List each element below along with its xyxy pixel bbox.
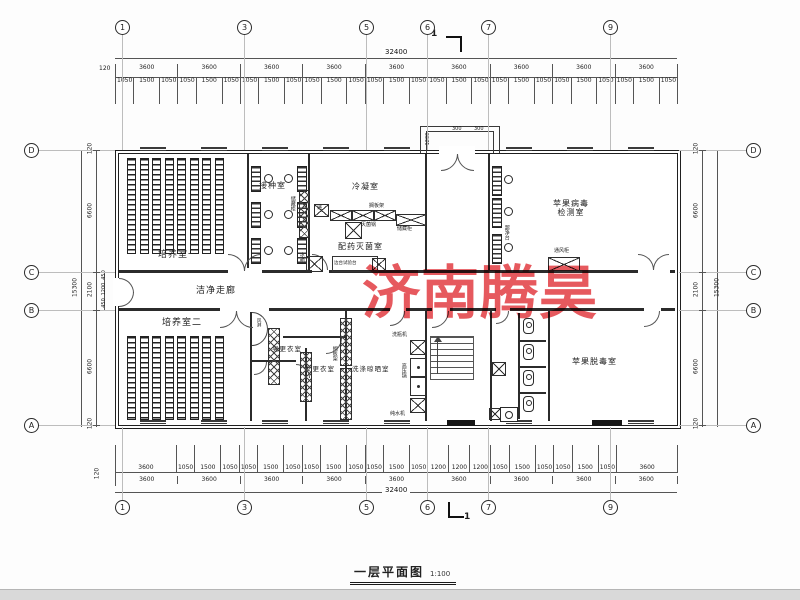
grid-bubble-bottom: 7 xyxy=(481,500,496,515)
culture-rack xyxy=(202,158,211,254)
door-threshold xyxy=(447,420,475,426)
grid-bubble-right: B xyxy=(746,303,761,318)
dim-segment: 1050 xyxy=(240,445,258,472)
grid-bubble-bottom: 1 xyxy=(115,500,130,515)
dim-segment: 1500 xyxy=(384,445,410,472)
grid-axis-line xyxy=(38,425,115,426)
stool xyxy=(284,210,293,219)
window-symbol xyxy=(140,147,166,149)
room-label-detox: 苹果脱毒室 xyxy=(572,357,617,366)
grid-bubble-bottom: 5 xyxy=(359,500,374,515)
culture-rack xyxy=(152,158,161,254)
dim-segment: 3600 xyxy=(366,64,428,77)
locker-rack xyxy=(268,328,280,385)
dim-segment: 1050 xyxy=(285,77,303,104)
grid-bubble-right: D xyxy=(746,143,761,158)
room-label-corridor: 洁净走廊 xyxy=(196,286,236,296)
dim-right-120b: 120 xyxy=(693,409,700,439)
window-symbol xyxy=(201,420,227,422)
dim-segment: 1050 xyxy=(223,77,241,104)
culture-rack xyxy=(152,336,161,420)
clean-bench xyxy=(492,198,502,228)
dim-segment: 1050 xyxy=(553,77,571,104)
dim-segment: 3600 xyxy=(428,64,490,77)
drawing-scale: 1:100 xyxy=(430,570,450,578)
culture-rack xyxy=(165,336,174,420)
dim-right-120a: 120 xyxy=(693,134,700,164)
grid-bubble-top: 1 xyxy=(115,20,130,35)
stool xyxy=(264,174,273,183)
dim-segment: 3600 xyxy=(303,476,365,484)
grid-axis-line xyxy=(38,272,115,273)
equip-label-clean-bench: 超净台 xyxy=(503,225,509,240)
dim-segment: 1050 xyxy=(303,77,321,104)
footer-strip xyxy=(0,589,800,600)
dim-segment: 1050 xyxy=(410,77,428,104)
dim-line-left xyxy=(96,150,97,427)
dim-top-lead: 120 xyxy=(99,66,110,73)
dim-segment: 3600 xyxy=(116,445,177,472)
window-symbol xyxy=(262,147,288,149)
entrance-dim-300b: 300 xyxy=(474,127,484,133)
dim-segment: 3600 xyxy=(116,476,178,484)
stool xyxy=(504,207,513,216)
dim-segment: 1050 xyxy=(366,77,384,104)
dim-row-bottom-bays: 360036003600360036003600360036003600 xyxy=(115,472,678,486)
equip-label-bottle-washer: 洗瓶机 xyxy=(392,333,407,339)
dim-bottom-lead: 120 xyxy=(94,464,101,484)
grid-axis-line xyxy=(427,427,428,500)
culture-rack xyxy=(215,158,224,254)
dim-right-overall: 15300 xyxy=(714,273,721,303)
stool xyxy=(264,246,273,255)
stool xyxy=(284,246,293,255)
section-mark-bottom-label: 1 xyxy=(464,512,471,522)
room-label-condensing: 冷凝室 xyxy=(352,182,379,191)
dim-bottom-overall: 32400 xyxy=(382,486,410,494)
culture-rack xyxy=(202,336,211,420)
grid-bubble-right: A xyxy=(746,418,761,433)
equipment-box xyxy=(314,204,329,217)
culture-rack xyxy=(190,336,199,420)
interior-wall xyxy=(247,154,249,272)
equipment-box xyxy=(396,214,426,226)
equip-label-storage: 储藏柜 xyxy=(397,227,412,233)
grid-axis-line xyxy=(679,310,746,311)
door-opening xyxy=(439,146,475,154)
equip-label-shelf-row: 搁板架 xyxy=(369,204,384,210)
dim-segment: 1050 xyxy=(347,77,365,104)
dim-segment: 1500 xyxy=(510,445,536,472)
dim-segment: 1050 xyxy=(491,77,509,104)
grid-axis-line xyxy=(427,34,428,150)
culture-rack xyxy=(127,158,136,254)
grid-bubble-top: 9 xyxy=(603,20,618,35)
room-label-inoculation: 接种室 xyxy=(259,181,286,190)
window-symbol xyxy=(567,147,593,149)
toilet-pan xyxy=(523,344,534,360)
grid-axis-line xyxy=(610,34,611,150)
dim-segment: 1050 xyxy=(536,445,554,472)
dim-left-120b: 120 xyxy=(87,409,94,439)
grid-bubble-left: B xyxy=(24,303,39,318)
dim-segment: 3600 xyxy=(553,64,615,77)
dim-segment: 1050 xyxy=(160,77,178,104)
dim-tick xyxy=(699,425,706,426)
equip-label-sterilizer: 灭菌锅 xyxy=(361,223,376,229)
window-symbol xyxy=(323,147,349,149)
dim-segment: 3600 xyxy=(116,64,178,77)
culture-rack xyxy=(127,336,136,420)
dim-tick xyxy=(93,310,100,311)
grid-axis-line xyxy=(366,427,367,500)
equipment-box xyxy=(306,256,323,272)
window-symbol xyxy=(262,420,288,422)
dim-right-2100: 2100 xyxy=(693,275,700,305)
culture-rack xyxy=(215,336,224,420)
dim-left-6600a: 6600 xyxy=(87,196,94,226)
grid-axis-line xyxy=(488,34,489,150)
dim-segment: 1500 xyxy=(259,77,285,104)
dim-top-overall: 32400 xyxy=(382,48,410,56)
window-symbol xyxy=(384,420,410,422)
toilet-pan xyxy=(523,396,534,412)
room-label-washing: 洗涤晾晒室 xyxy=(352,366,390,373)
dim-segment: 1500 xyxy=(384,77,410,104)
culture-rack xyxy=(165,158,174,254)
dim-segment: 3600 xyxy=(178,476,240,484)
work-bench xyxy=(251,166,261,192)
locker-rack xyxy=(300,352,312,402)
dim-segment: 1500 xyxy=(322,77,348,104)
work-bench xyxy=(251,238,261,264)
equip-label-water-purifier: 纯水机 xyxy=(390,412,405,418)
dim-segment: 1050 xyxy=(221,445,239,472)
culture-rack xyxy=(140,158,149,254)
interior-wall xyxy=(518,340,546,342)
work-bench xyxy=(297,166,307,192)
dim-segment: 1050 xyxy=(303,445,321,472)
dim-tick xyxy=(93,150,100,151)
dim-segment: 3600 xyxy=(491,64,553,77)
window-symbol xyxy=(323,420,349,422)
equip-label-storage2: 储藏柜 xyxy=(289,196,295,211)
dim-tick xyxy=(699,272,706,273)
grid-bubble-left: C xyxy=(24,265,39,280)
door-opening xyxy=(253,306,269,312)
locker-rack xyxy=(299,190,310,238)
window-symbol xyxy=(628,420,654,422)
dim-segment: 1200 xyxy=(428,445,449,472)
dim-segment: 3600 xyxy=(616,476,678,484)
section-mark-bottom-icon xyxy=(448,502,464,518)
interior-wall xyxy=(518,366,546,368)
dim-segment: 3600 xyxy=(303,64,365,77)
dim-segment: 1050 xyxy=(535,77,553,104)
dim-segment: 1050 xyxy=(177,445,195,472)
dim-segment: 1050 xyxy=(597,77,615,104)
dim-segment: 3600 xyxy=(617,445,678,472)
dim-segment: 1500 xyxy=(321,445,347,472)
grid-axis-line xyxy=(679,425,746,426)
dim-row-top-windows: 1050150010501050150010501050150010501050… xyxy=(115,77,678,104)
window-symbol xyxy=(201,147,227,149)
equipment-box xyxy=(330,210,352,221)
watermark: 济南腾昊 xyxy=(362,246,598,330)
room-label-culture2: 培养室二 xyxy=(162,318,202,328)
dim-line-left-overall xyxy=(81,150,82,427)
dim-right-6600b: 6600 xyxy=(693,352,700,382)
door-threshold xyxy=(592,420,622,426)
dim-segment: 1050 xyxy=(178,77,196,104)
grid-bubble-left: D xyxy=(24,143,39,158)
grid-axis-line xyxy=(244,427,245,500)
interior-wall xyxy=(518,392,546,394)
locker-rack xyxy=(340,368,352,420)
grid-bubble-bottom: 3 xyxy=(237,500,252,515)
grid-axis-line xyxy=(122,34,123,150)
dim-segment: 1500 xyxy=(509,77,535,104)
dim-left-overall: 15300 xyxy=(72,273,79,303)
clean-bench xyxy=(492,166,502,196)
dim-segment: 3600 xyxy=(428,476,490,484)
dim-left-120a: 120 xyxy=(87,134,94,164)
dim-segment: 1200 xyxy=(449,445,470,472)
dim-segment: 1050 xyxy=(428,77,446,104)
dim-segment: 1050 xyxy=(284,445,302,472)
grid-bubble-top: 6 xyxy=(420,20,435,35)
dim-segment: 3600 xyxy=(491,476,553,484)
dim-segment: 1500 xyxy=(572,77,598,104)
dim-segment: 1050 xyxy=(366,445,384,472)
culture-rack xyxy=(190,158,199,254)
dim-segment: 1500 xyxy=(195,445,221,472)
window-symbol xyxy=(628,147,654,149)
dim-tick xyxy=(93,425,100,426)
dim-left-2100: 2100 xyxy=(87,275,94,305)
dim-segment: 1050 xyxy=(554,445,572,472)
window-symbol xyxy=(506,147,532,149)
equipment-box xyxy=(374,210,396,221)
dim-tick xyxy=(699,310,706,311)
grid-axis-line xyxy=(244,34,245,150)
grid-bubble-left: A xyxy=(24,418,39,433)
culture-rack xyxy=(177,158,186,254)
dim-segment: 3600 xyxy=(616,64,678,77)
room-label-virus-test: 苹果病毒检测室 xyxy=(551,199,591,217)
stair-arrow-head xyxy=(434,336,442,342)
grid-axis-line xyxy=(610,427,611,500)
dim-segment: 1500 xyxy=(197,77,223,104)
dim-segment: 1500 xyxy=(258,445,284,472)
equipment-box xyxy=(410,398,426,413)
dim-segment: 1500 xyxy=(573,445,599,472)
dim-segment: 1050 xyxy=(491,445,509,472)
dim-segment: 1050 xyxy=(347,445,365,472)
grid-bubble-right: C xyxy=(746,265,761,280)
dim-segment: 1050 xyxy=(116,77,134,104)
dim-segment: 3600 xyxy=(178,64,240,77)
dim-left-6600b: 6600 xyxy=(87,352,94,382)
dim-segment: 1050 xyxy=(410,445,428,472)
dim-segment: 1500 xyxy=(634,77,660,104)
equip-label-autoclave: 高压锅 xyxy=(400,363,406,378)
drawing-title-block: 一层平面图 1:100 xyxy=(350,563,456,585)
equipment-box xyxy=(492,362,506,376)
entrance-dim-300a: 300 xyxy=(452,127,462,133)
grid-axis-line xyxy=(679,150,746,151)
work-bench xyxy=(251,202,261,228)
dim-row-top-bays: 360036003600360036003600360036003600 xyxy=(115,64,678,78)
grid-axis-line xyxy=(488,427,489,500)
dim-segment: 3600 xyxy=(366,476,428,484)
dim-segment: 1050 xyxy=(599,445,617,472)
grid-axis-line xyxy=(38,150,115,151)
equipment-box xyxy=(345,222,362,239)
dim-segment: 3600 xyxy=(553,476,615,484)
dim-segment: 1050 xyxy=(660,77,678,104)
stair-arrow-line xyxy=(437,340,438,374)
dim-segment: 3600 xyxy=(241,64,303,77)
stool xyxy=(504,175,513,184)
grid-bubble-bottom: 6 xyxy=(420,500,435,515)
dim-segment: 1050 xyxy=(616,77,634,104)
window-symbol xyxy=(140,420,166,422)
grid-bubble-top: 7 xyxy=(481,20,496,35)
grid-axis-line xyxy=(38,310,115,311)
equipment-box xyxy=(410,340,426,355)
dim-row-bottom-windows: 3600105015001050105015001050105015001050… xyxy=(115,445,678,472)
stool xyxy=(264,210,273,219)
grid-bubble-top: 3 xyxy=(237,20,252,35)
window-symbol xyxy=(384,147,410,149)
locker-rack xyxy=(340,318,352,366)
dim-tick xyxy=(93,272,100,273)
toilet-pan xyxy=(523,370,534,386)
dim-segment: 1500 xyxy=(447,77,473,104)
drawing-title: 一层平面图 xyxy=(354,563,424,580)
grid-bubble-top: 5 xyxy=(359,20,374,35)
grid-bubble-bottom: 9 xyxy=(603,500,618,515)
dim-right-6600a: 6600 xyxy=(693,196,700,226)
autoclave-box xyxy=(410,377,426,396)
stool xyxy=(284,174,293,183)
dim-line-top-overall xyxy=(115,58,677,59)
entrance-dim-1200: 1200 xyxy=(425,124,431,154)
dim-segment: 1500 xyxy=(134,77,160,104)
dim-segment: 3600 xyxy=(241,476,303,484)
dim-line-right xyxy=(702,150,703,427)
grid-axis-line xyxy=(366,34,367,150)
grid-axis-line xyxy=(122,427,123,500)
section-mark-top-icon xyxy=(446,36,462,52)
sink xyxy=(500,407,518,422)
grid-axis-line xyxy=(679,272,746,273)
equipment-box xyxy=(352,210,374,221)
dim-tick xyxy=(699,150,706,151)
culture-rack xyxy=(140,336,149,420)
autoclave-box xyxy=(410,358,426,377)
floorplan-canvas: 1200 300 300 1 1 32400 36003600360036003… xyxy=(0,0,800,600)
dim-left-450b: 450 xyxy=(101,288,107,318)
culture-rack xyxy=(177,336,186,420)
